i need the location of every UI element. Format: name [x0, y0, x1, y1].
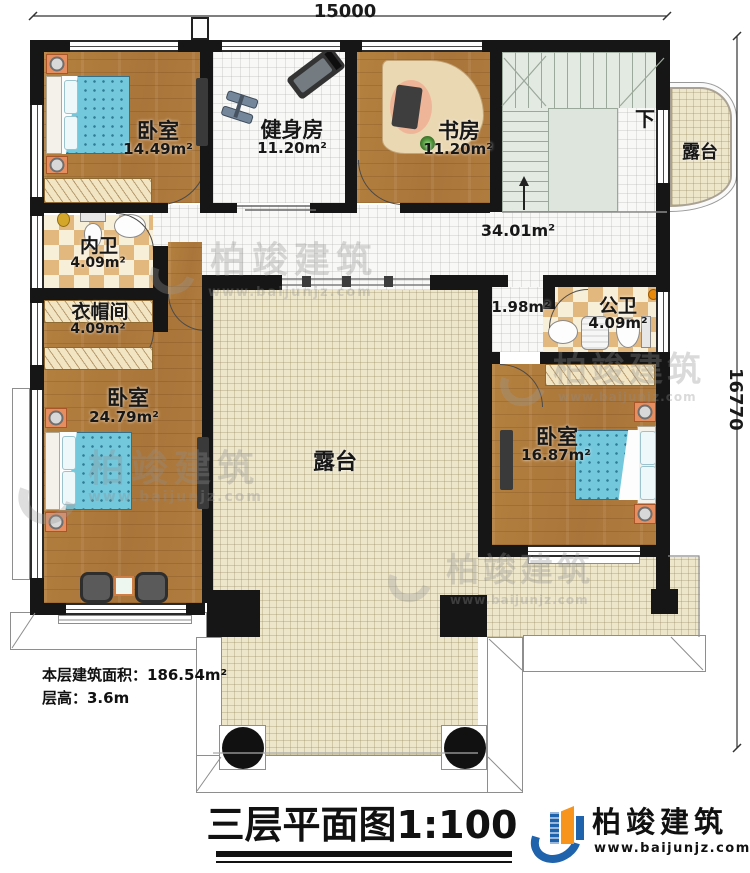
watermark-url: www.baijunjz.com	[450, 594, 589, 606]
bed-pillow	[640, 431, 656, 465]
window	[66, 603, 186, 615]
bed-pillow	[640, 466, 656, 500]
stairs-down-label: 下	[635, 109, 655, 129]
wall-bedroom-right-bottom	[640, 545, 668, 557]
watermark-brand: 柏竣建筑	[446, 553, 594, 586]
column-left	[222, 727, 264, 769]
room-label-terrace-right: 露台	[682, 144, 718, 162]
watermark-url: www.baijunjz.com	[208, 286, 373, 299]
wall-right	[656, 40, 670, 110]
lamp-icon	[50, 158, 65, 173]
wardrobe	[44, 178, 152, 203]
floor-drain-icon	[57, 212, 70, 227]
nightstand	[634, 504, 656, 524]
wall-gym-bottom	[200, 203, 237, 213]
pillar-block	[207, 590, 260, 637]
tv-panel	[196, 78, 208, 146]
watermark-brand: 柏竣建筑	[88, 450, 260, 487]
pillar-block	[651, 589, 678, 614]
window	[30, 105, 44, 197]
bed-pillow	[62, 436, 76, 470]
room-area-study: 11.20m²	[423, 142, 493, 157]
nightstand	[45, 408, 67, 428]
toilet-tank	[80, 212, 106, 222]
watermark-url: www.baijunjz.com	[558, 391, 697, 403]
wall-terrace-bedroom-right	[478, 278, 492, 557]
page-title: 三层平面图1:100	[207, 806, 518, 844]
small-passage-area: 1.98m²	[491, 300, 550, 315]
nightstand	[46, 156, 68, 174]
nightstand	[634, 402, 656, 422]
watermark-brand: 柏竣建筑	[210, 243, 378, 279]
window	[70, 40, 178, 52]
wall-public-bath-top	[543, 275, 656, 287]
window	[30, 216, 44, 288]
lamp-icon	[638, 507, 653, 522]
wall-bedroom-left-bottom	[30, 603, 66, 615]
watermark-url: www.baijunjz.com	[88, 490, 263, 504]
bed-pillow	[64, 116, 78, 150]
lamp-icon	[49, 411, 64, 426]
room-area-inner-bathroom: 4.09m²	[70, 256, 125, 270]
room-label-inner-bathroom: 内卫	[80, 237, 118, 256]
brand-logo-mark-icon	[530, 806, 586, 858]
watermark-brand: 柏竣建筑	[553, 353, 705, 387]
tv-panel	[500, 430, 513, 490]
lamp-icon	[50, 57, 65, 72]
logo-tower-orange	[561, 806, 574, 844]
room-area-public-bathroom: 4.09m²	[588, 316, 647, 331]
window	[656, 292, 670, 352]
room-label-terrace-center: 露台	[313, 452, 357, 474]
logo-tower-blue	[550, 812, 559, 844]
terrace-door	[656, 110, 670, 183]
wardrobe	[44, 347, 153, 370]
wall-gym-bottom	[310, 203, 357, 213]
logo-tower-blue-small	[576, 816, 584, 840]
parapet-right	[523, 635, 706, 672]
wall-bath-row-bottom	[478, 352, 500, 364]
wall-gym-study	[345, 52, 357, 203]
wall-study-bottom	[400, 203, 490, 213]
room-label-bedroom-right: 卧室	[536, 427, 578, 448]
hallway-area: 34.01m²	[481, 223, 555, 239]
brand-logo: 柏竣建筑 www.baijunjz.com	[530, 800, 740, 862]
armchair	[80, 572, 113, 603]
nightstand	[46, 54, 68, 74]
brand-url: www.baijunjz.com	[594, 842, 750, 855]
room-area-cloakroom: 4.09m²	[70, 322, 125, 336]
terrace-center-floor	[213, 290, 478, 755]
lamp-icon	[638, 405, 653, 420]
bed-pillow	[64, 80, 78, 114]
brand-name: 柏竣建筑	[592, 808, 728, 837]
room-label-cloakroom: 衣帽间	[71, 303, 128, 322]
room-label-gym: 健身房	[261, 120, 324, 141]
stair-flight-left	[502, 108, 548, 212]
bed-headboard	[46, 76, 62, 154]
parapet-terrace-right	[487, 637, 523, 793]
window	[362, 40, 482, 52]
window-sill-bottom-left	[58, 615, 192, 624]
wall-bedroom-left-bottom	[186, 603, 205, 615]
floor-plan-canvas: 柏竣建筑 www.baijunjz.com 柏竣建筑 www.baijunjz.…	[0, 0, 750, 873]
note-floor-height: 层高：3.6m	[42, 691, 129, 706]
room-area-bedroom-right: 16.87m²	[521, 448, 591, 463]
small-passage-floor	[492, 287, 543, 352]
room-label-bedroom-top-left: 卧室	[137, 121, 179, 142]
column-right	[444, 727, 486, 769]
room-area-bedroom-left: 24.79m²	[89, 410, 159, 425]
note-floor-area: 本层建筑面积：186.54m²	[42, 668, 227, 683]
room-area-bedroom-top-left: 14.49m²	[123, 142, 193, 157]
wall-study-stair	[490, 52, 502, 212]
dimension-width: 15000	[314, 3, 377, 21]
wall-inner-bath-bottom	[44, 288, 153, 300]
window	[222, 40, 340, 52]
wall-passage-top-stub	[490, 275, 508, 287]
armchair	[135, 572, 168, 603]
room-label-study: 书房	[438, 121, 480, 142]
room-area-gym: 11.20m²	[257, 141, 327, 156]
window	[30, 303, 44, 365]
dimension-height: 16770	[726, 368, 744, 431]
room-label-bedroom-left: 卧室	[107, 388, 149, 409]
wall-bedroom1-bottom	[44, 203, 168, 213]
title-underline-thick	[216, 851, 512, 857]
stair-landing	[548, 108, 618, 212]
title-underline-thin	[216, 861, 512, 863]
side-table	[114, 576, 134, 596]
stair-flight-top	[502, 52, 667, 108]
chimney-flue	[191, 17, 209, 40]
